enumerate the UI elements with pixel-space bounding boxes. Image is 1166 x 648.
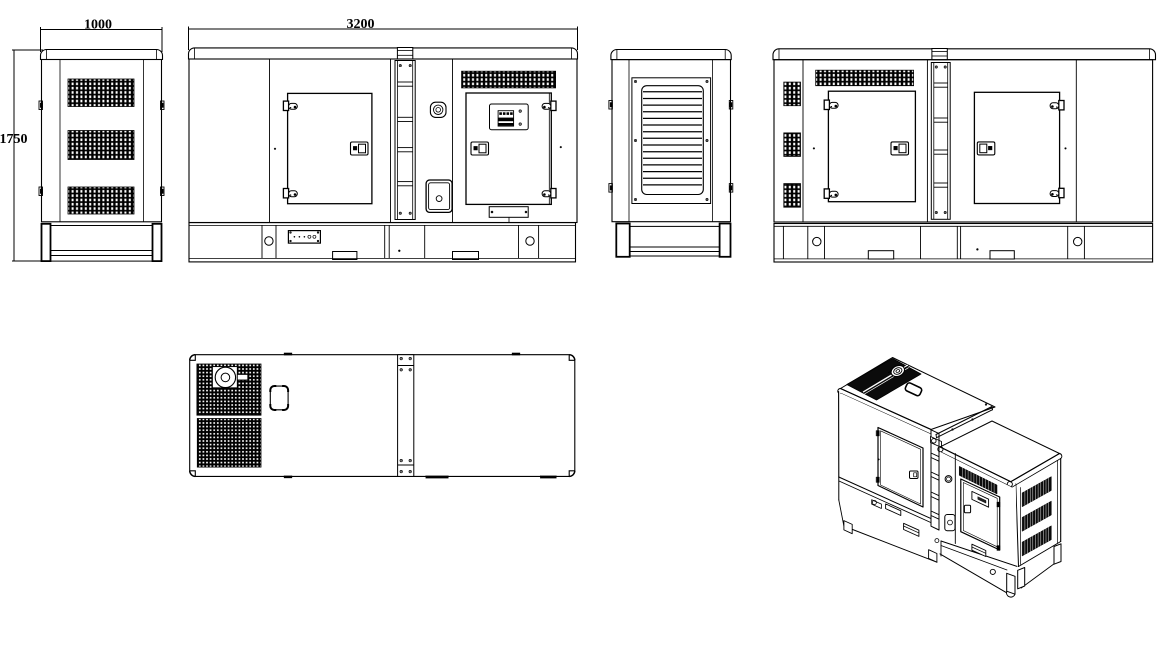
svg-text:1750: 1750 bbox=[0, 132, 28, 147]
svg-text:1000: 1000 bbox=[84, 17, 112, 32]
svg-text:3200: 3200 bbox=[347, 17, 375, 32]
